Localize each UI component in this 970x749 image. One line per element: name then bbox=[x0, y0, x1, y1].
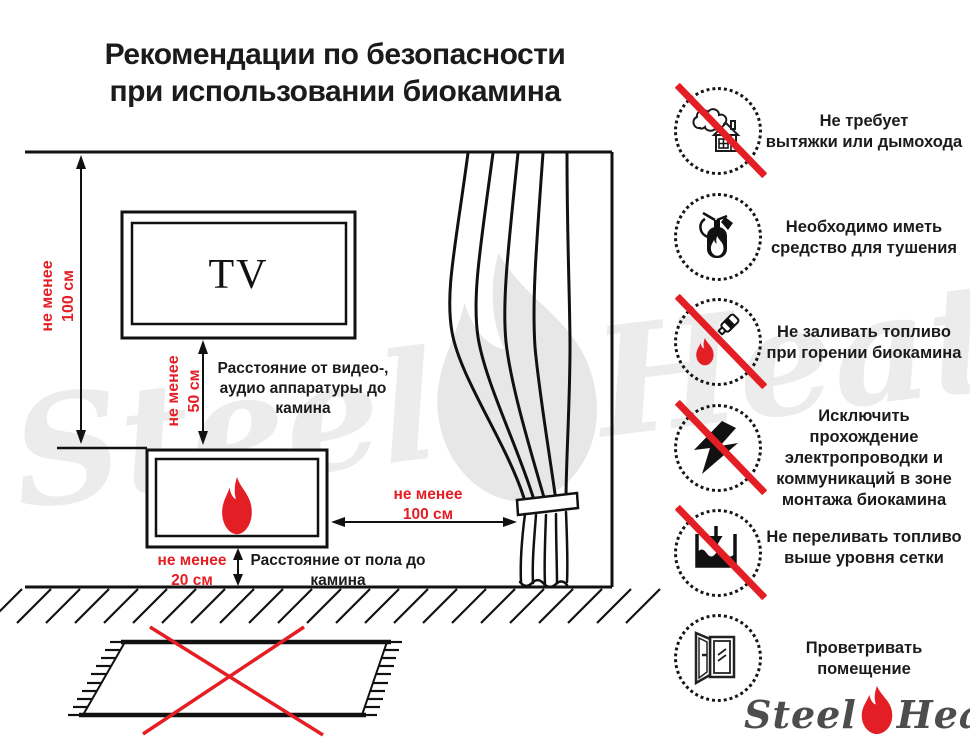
page-title-line1: Рекомендации по безопасности bbox=[15, 36, 655, 73]
rule-text: Не переливать топливо выше уровня сетки bbox=[762, 527, 966, 569]
rule-extinguisher: Необходимо иметь средство для тушения bbox=[660, 193, 966, 309]
extinguisher-icon bbox=[674, 193, 762, 281]
floor-hatching bbox=[0, 589, 660, 623]
rule-text: Исключить прохождение электропроводки и … bbox=[762, 406, 966, 511]
curtain-distance-label: не менее 100 см bbox=[370, 485, 486, 525]
tv-label: TV bbox=[122, 212, 355, 338]
page-title-line2: при использовании биокамина bbox=[15, 73, 655, 110]
rule-text: Не заливать топливо при горении биокамин… bbox=[762, 322, 966, 364]
wall-dimension-label: не менее 100 см bbox=[37, 260, 79, 331]
rule-no-chimney: Не требует вытяжки или дымохода bbox=[660, 87, 966, 203]
biofireplace-safety-infographic: { "title": {"line1": "Рекомендации по бе… bbox=[0, 0, 970, 749]
rule-no-refuel-while-burning: Не заливать топливо при горении биокамин… bbox=[660, 298, 966, 414]
logo-flame-icon bbox=[859, 686, 895, 743]
logo-heat-text: Heat bbox=[897, 692, 970, 737]
curtain-tie-band bbox=[517, 493, 578, 515]
fireplace bbox=[147, 450, 327, 547]
carpet bbox=[68, 627, 402, 735]
tv-dimension-label: не менее 50 см bbox=[163, 355, 205, 426]
rule-text: Не требует вытяжки или дымохода bbox=[762, 111, 966, 153]
floor-dimension-arrow bbox=[233, 548, 243, 586]
steelheat-logo: Steel Heat bbox=[744, 686, 970, 743]
floor-clearance-value-label: не менее 20 см bbox=[150, 551, 234, 591]
logo-steel-text: Steel bbox=[744, 692, 857, 737]
rule-text: Необходимо иметь средство для тушения bbox=[762, 217, 966, 259]
rule-no-overfill: Не переливать топливо выше уровня сетки bbox=[660, 509, 966, 625]
floor-clearance-label: Расстояние от пола до камина bbox=[248, 551, 428, 591]
page-title: Рекомендации по безопасности при использ… bbox=[15, 36, 655, 110]
av-distance-label: Расстояние от видео-, аудио аппаратуры д… bbox=[207, 359, 399, 419]
rule-text: Проветривать помещение bbox=[762, 638, 966, 680]
rule-no-electrical-wiring: Исключить прохождение электропроводки и … bbox=[660, 404, 966, 520]
